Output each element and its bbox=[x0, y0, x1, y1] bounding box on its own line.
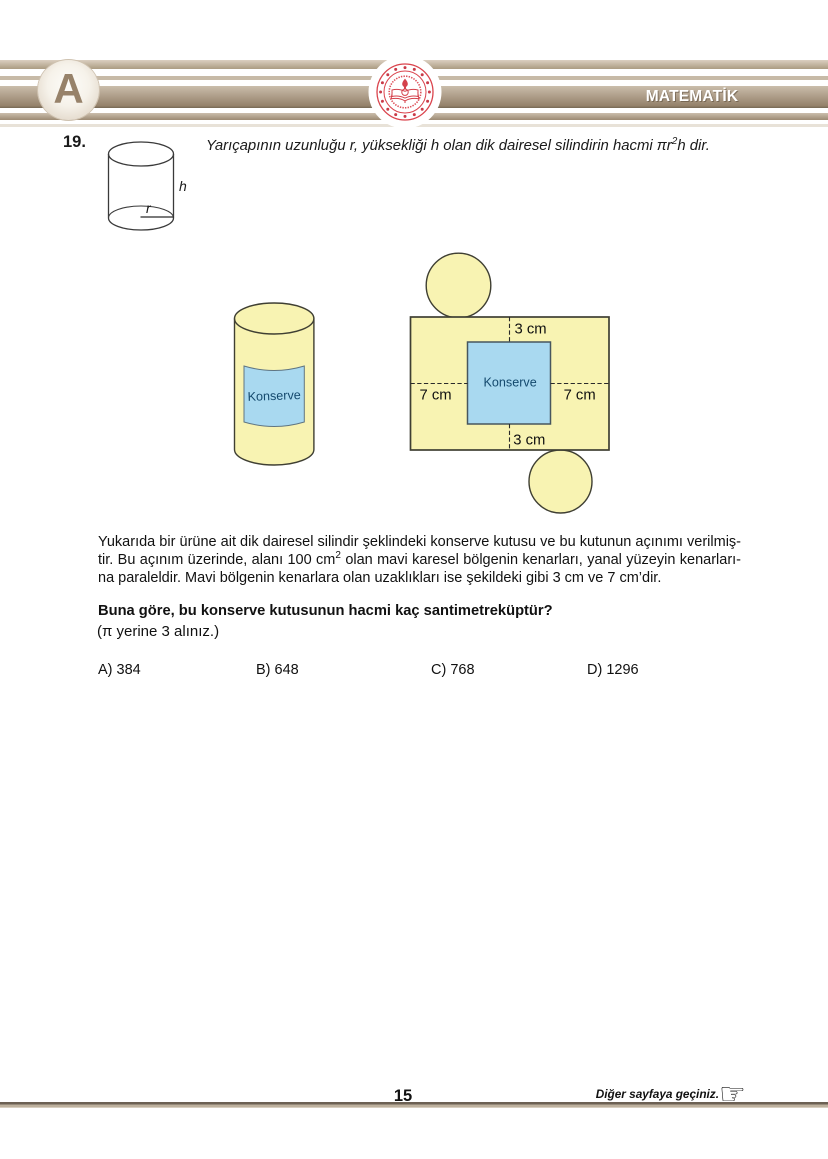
svg-text:h: h bbox=[179, 178, 187, 194]
svg-text:7 cm: 7 cm bbox=[420, 388, 452, 404]
svg-text:7 cm: 7 cm bbox=[564, 388, 596, 404]
svg-text:3 cm: 3 cm bbox=[515, 322, 547, 338]
svg-text:Konserve: Konserve bbox=[247, 388, 301, 404]
svg-text:Konserve: Konserve bbox=[484, 376, 537, 390]
svg-text:r: r bbox=[146, 200, 152, 216]
svg-text:3 cm: 3 cm bbox=[513, 433, 545, 449]
